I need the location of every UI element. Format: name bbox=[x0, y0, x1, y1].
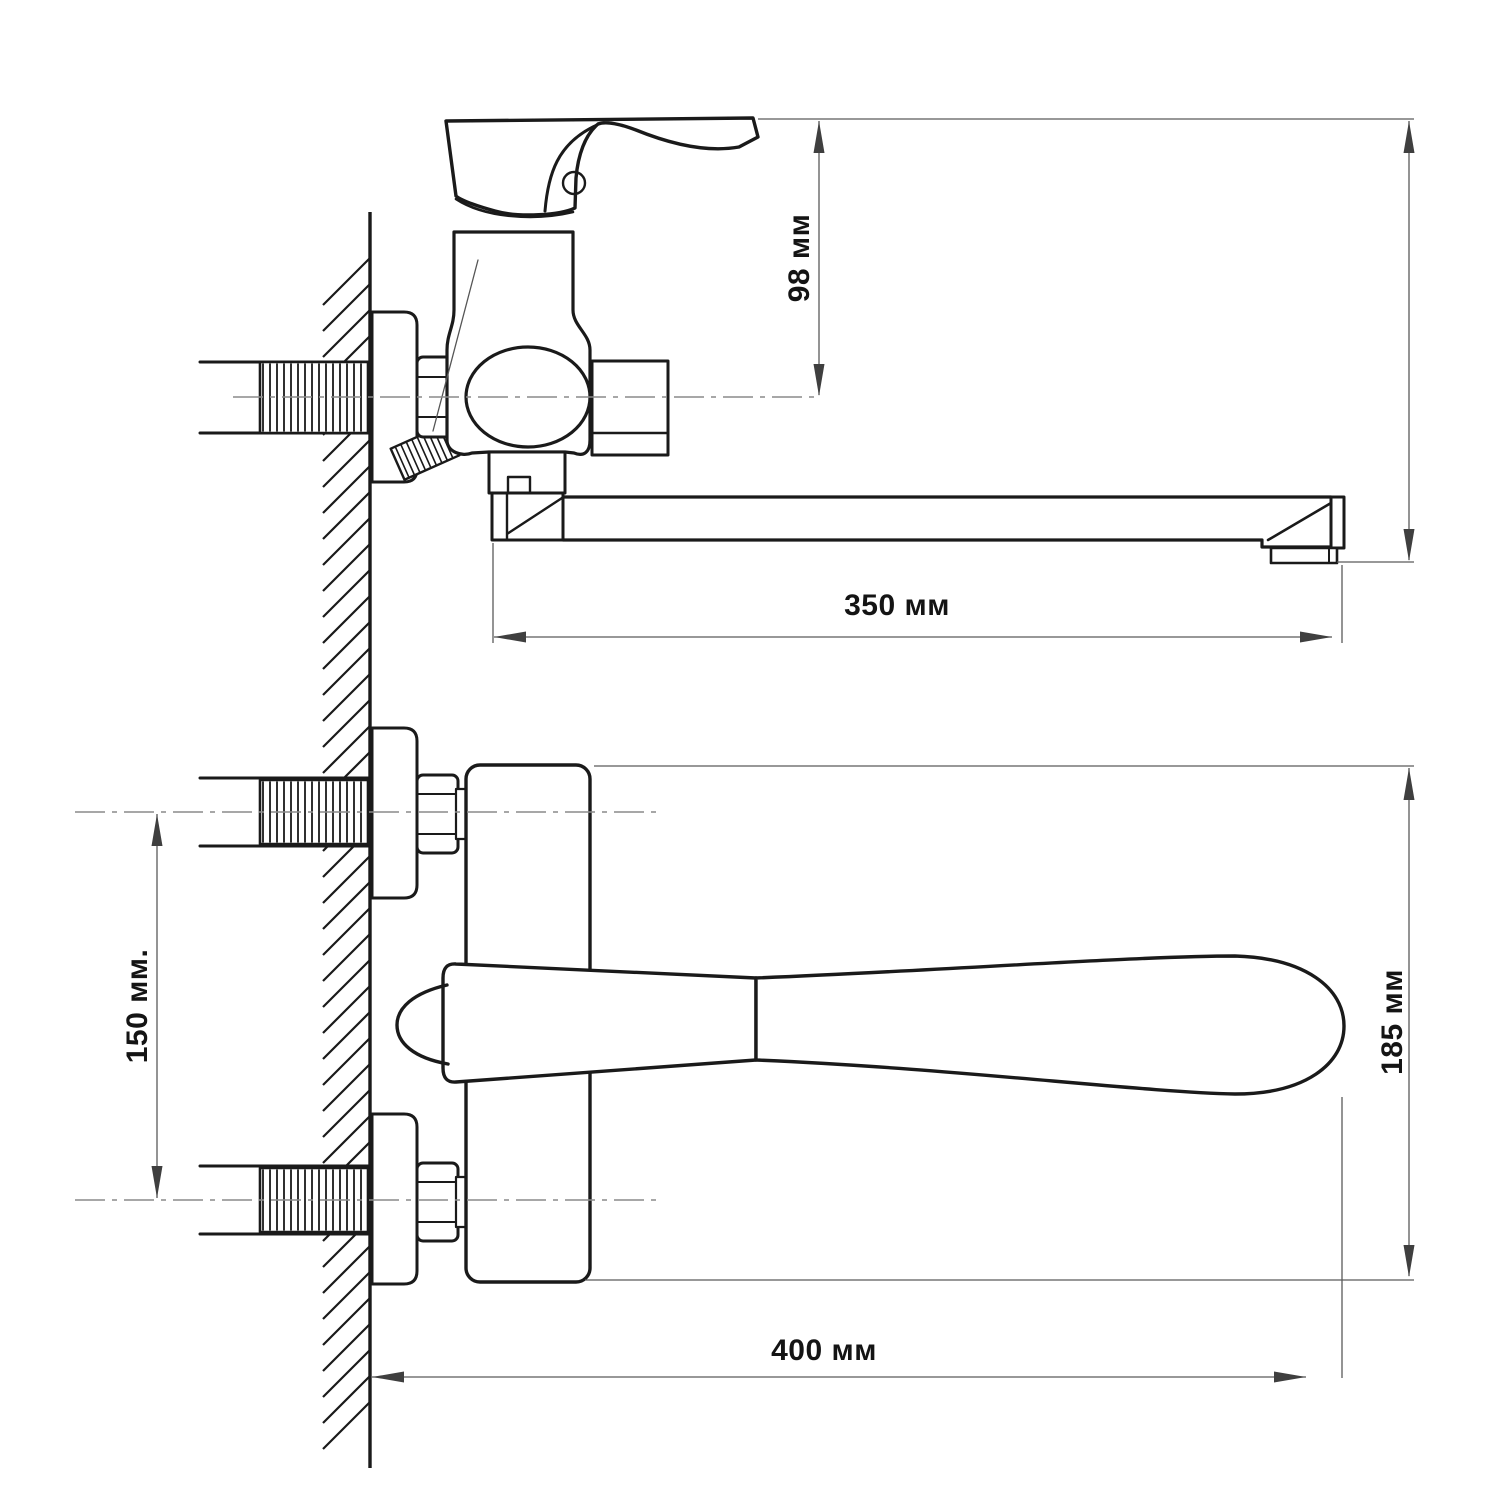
drawing-linework bbox=[0, 0, 1500, 1488]
front-view-lower-flange bbox=[372, 1114, 417, 1284]
side-view-spout-connection bbox=[489, 452, 565, 540]
dimension-label-350mm: 350 мм bbox=[844, 589, 950, 623]
front-view-upper-nut bbox=[417, 775, 467, 853]
dimension-label-185mm: 185 мм bbox=[1376, 969, 1410, 1075]
wall-hatching bbox=[323, 258, 370, 1449]
side-view-shower-outlet bbox=[592, 361, 668, 455]
side-view-handle bbox=[446, 118, 758, 217]
dimension-label-400mm: 400 мм bbox=[771, 1334, 877, 1368]
dimension-label-150mm: 150 мм. bbox=[121, 949, 155, 1064]
front-view-handle bbox=[397, 956, 1344, 1094]
dimension-label-98mm: 98 мм bbox=[783, 214, 817, 303]
front-view-upper-flange bbox=[372, 728, 417, 898]
side-view-spout bbox=[563, 497, 1344, 563]
front-view-lower-nut bbox=[417, 1163, 467, 1241]
technical-drawing: 98 мм 350 мм 150 мм. 400 мм 185 мм bbox=[0, 0, 1500, 1488]
